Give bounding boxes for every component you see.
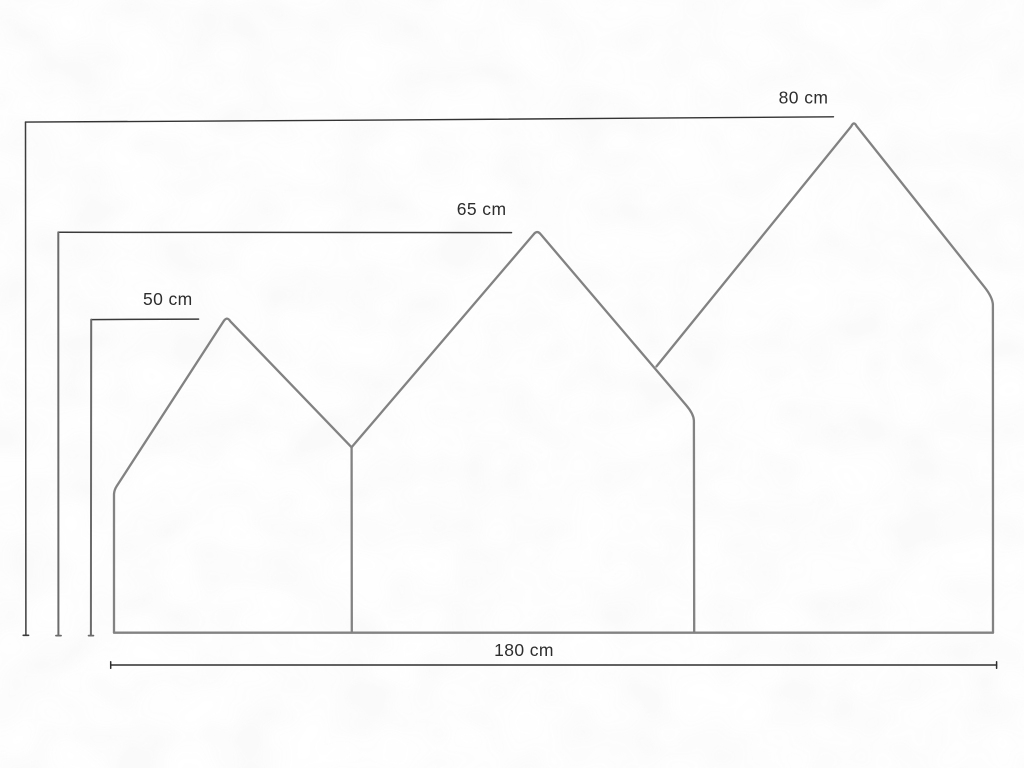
svg-text:50 cm: 50 cm — [143, 289, 193, 309]
svg-text:80 cm: 80 cm — [779, 88, 829, 108]
svg-text:180 cm: 180 cm — [494, 640, 554, 660]
svg-text:65 cm: 65 cm — [457, 199, 507, 219]
